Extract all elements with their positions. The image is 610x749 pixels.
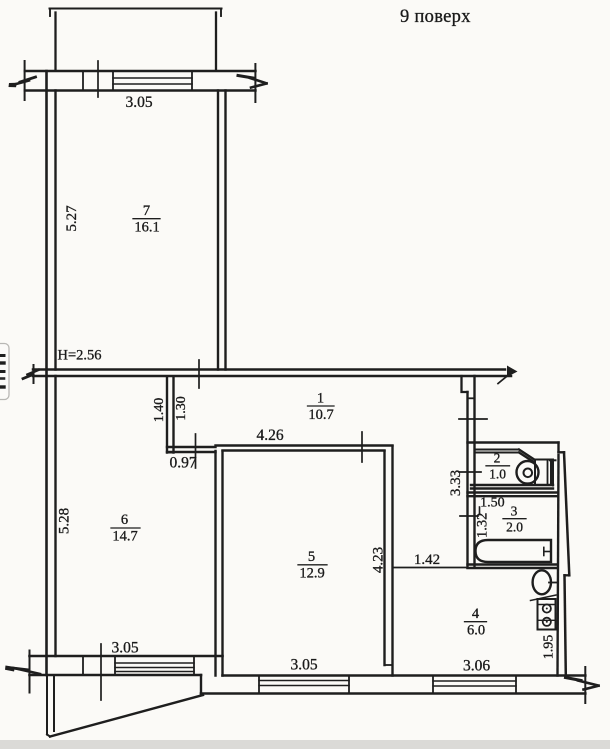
svg-text:3.05: 3.05 [290, 657, 317, 674]
svg-text:1: 1 [317, 391, 324, 407]
svg-text:5.28: 5.28 [57, 508, 73, 534]
svg-text:3.05: 3.05 [111, 640, 138, 657]
svg-text:3: 3 [511, 504, 518, 519]
svg-text:7: 7 [143, 203, 150, 219]
svg-text:1.32: 1.32 [474, 513, 490, 538]
svg-text:H=2.56: H=2.56 [58, 348, 102, 364]
svg-text:5: 5 [308, 549, 315, 565]
svg-text:3.05: 3.05 [125, 94, 152, 111]
svg-text:0.97: 0.97 [169, 455, 196, 472]
svg-text:6: 6 [121, 512, 128, 528]
svg-text:1.50: 1.50 [480, 496, 505, 511]
svg-text:1.42: 1.42 [414, 552, 440, 568]
svg-text:1.30: 1.30 [174, 396, 189, 421]
svg-text:1.95: 1.95 [542, 635, 557, 660]
svg-text:5.27: 5.27 [64, 205, 80, 232]
svg-text:1.40: 1.40 [152, 398, 167, 423]
svg-text:9 поверх: 9 поверх [400, 7, 471, 27]
svg-text:6.0: 6.0 [467, 623, 485, 639]
svg-text:4.26: 4.26 [256, 427, 283, 444]
svg-text:4: 4 [472, 606, 480, 622]
svg-text:4.23: 4.23 [371, 547, 387, 573]
svg-text:3.06: 3.06 [463, 658, 490, 675]
svg-text:14.7: 14.7 [112, 529, 137, 545]
svg-text:16.1: 16.1 [134, 220, 159, 236]
svg-text:2.0: 2.0 [506, 520, 523, 535]
svg-text:2: 2 [494, 451, 501, 466]
svg-text:10.7: 10.7 [308, 407, 333, 423]
svg-text:12.9: 12.9 [299, 566, 324, 582]
svg-text:3.33: 3.33 [448, 470, 464, 496]
svg-text:1.0: 1.0 [489, 467, 506, 482]
